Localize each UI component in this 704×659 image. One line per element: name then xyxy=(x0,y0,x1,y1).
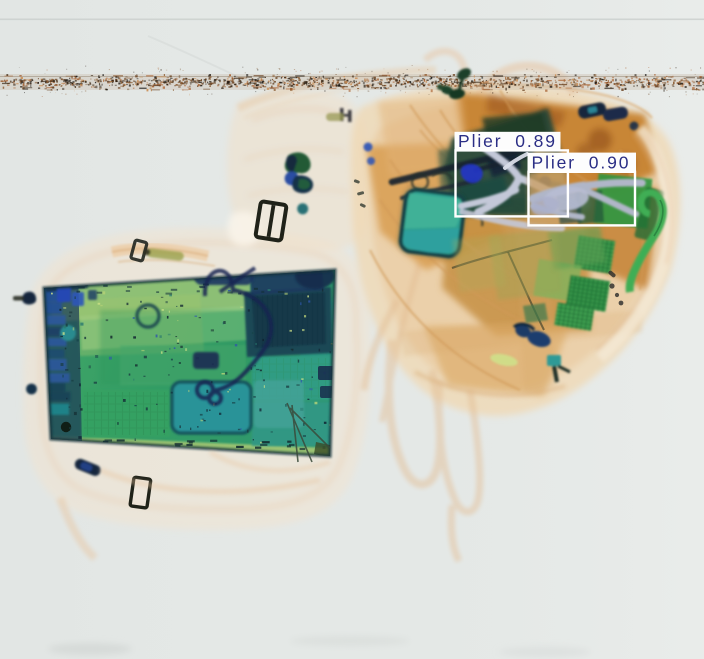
svg-text:Plier 0.89: Plier 0.89 xyxy=(458,131,557,151)
svg-text:Plier 0.90: Plier 0.90 xyxy=(532,152,631,172)
